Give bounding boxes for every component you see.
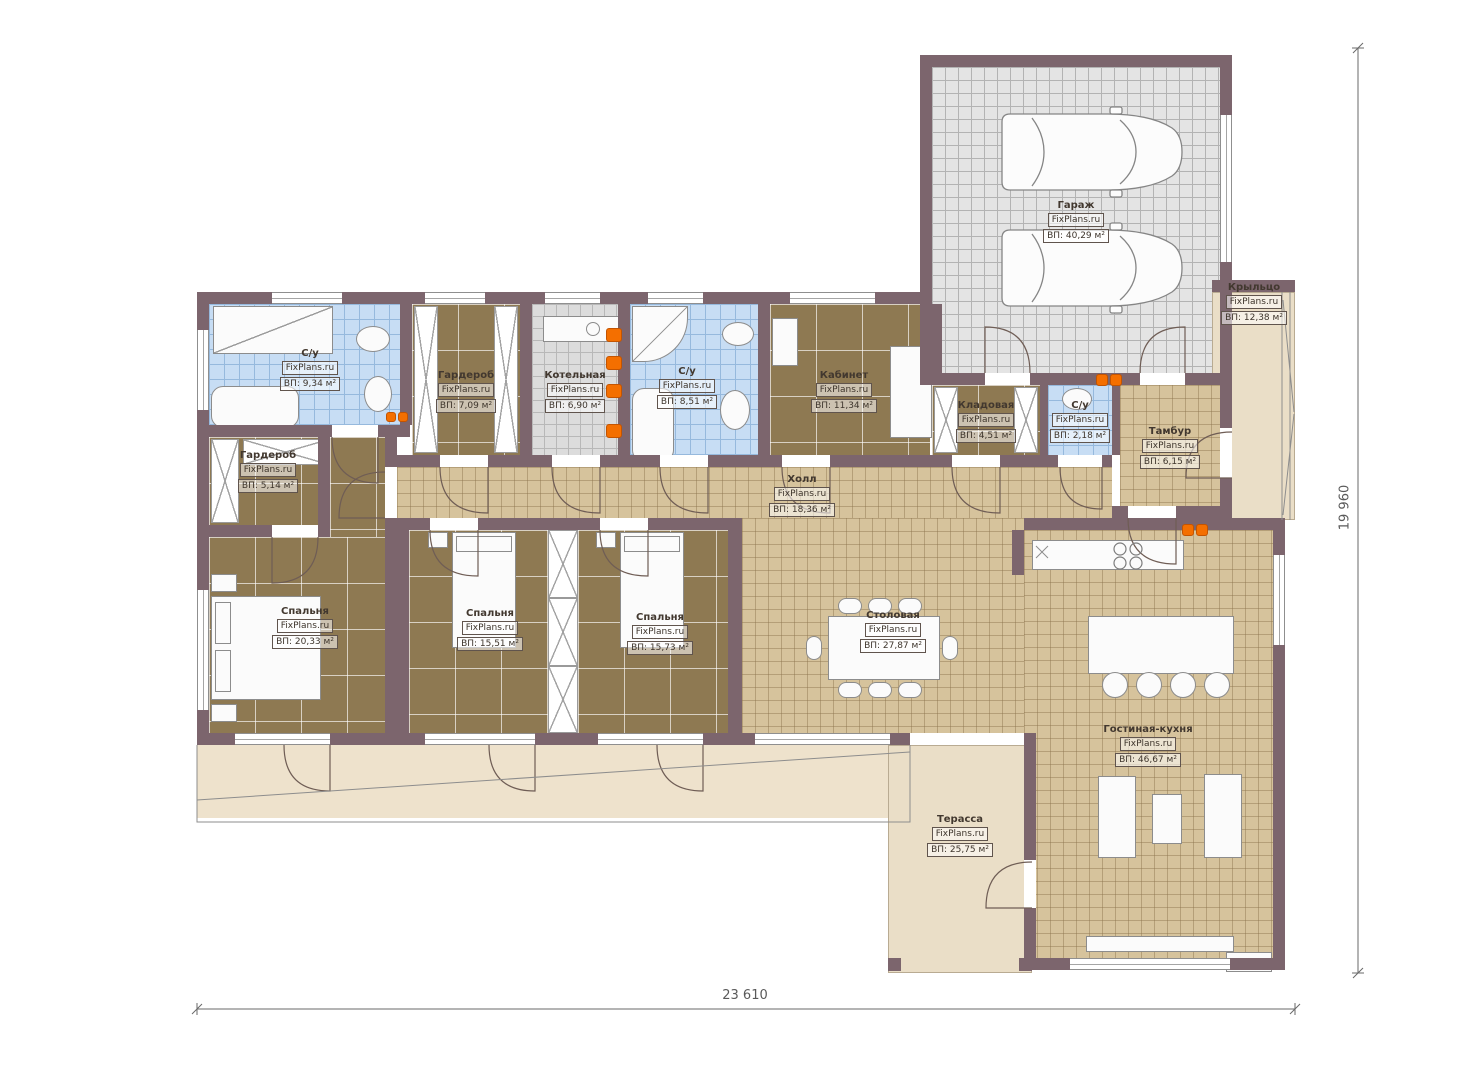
room-name: Холл xyxy=(787,474,816,485)
room-name: Тамбур xyxy=(1149,426,1191,437)
room-name: Столовая xyxy=(866,610,920,621)
door-opening xyxy=(385,467,397,518)
radiator xyxy=(1196,524,1208,536)
room-area: ВП: 46,67 м² xyxy=(1115,753,1181,767)
window-glass-door xyxy=(235,733,330,745)
chair xyxy=(868,682,892,698)
floor-plan-page: { "watermark": "FixPlans.ru", "dimension… xyxy=(0,0,1474,1080)
room-area: ВП: 27,87 м² xyxy=(860,639,926,653)
room-area: ВП: 2,18 м² xyxy=(1050,429,1110,443)
room-name: Гардероб xyxy=(240,450,296,461)
watermark: FixPlans.ru xyxy=(547,383,603,397)
floor-terrace xyxy=(888,745,1032,973)
room-label-bathroom-3: С/у FixPlans.ru ВП: 2,18 м² xyxy=(1044,400,1116,443)
room-area: ВП: 5,14 м² xyxy=(238,479,298,493)
nightstand xyxy=(211,704,237,722)
wall xyxy=(1220,518,1285,530)
wall xyxy=(197,425,410,437)
shower xyxy=(213,306,333,354)
wall xyxy=(1024,733,1036,958)
room-name: Спальня xyxy=(281,606,329,617)
chair xyxy=(942,636,958,660)
sofa xyxy=(1098,776,1136,858)
nightstand xyxy=(596,532,616,548)
toilet xyxy=(356,326,390,352)
wall xyxy=(728,530,742,733)
room-area: ВП: 18,36 м² xyxy=(769,503,835,517)
door-opening xyxy=(782,455,830,467)
radiator xyxy=(386,412,396,422)
watermark: FixPlans.ru xyxy=(282,361,338,375)
nightstand xyxy=(211,574,237,592)
watermark: FixPlans.ru xyxy=(1226,295,1282,309)
watermark: FixPlans.ru xyxy=(462,621,518,635)
room-name: Котельная xyxy=(544,370,605,381)
door-opening xyxy=(1128,506,1176,518)
window xyxy=(790,292,875,304)
room-label-bathroom-2: С/у FixPlans.ru ВП: 8,51 м² xyxy=(645,366,729,409)
window-glass-door xyxy=(755,733,890,745)
sink xyxy=(364,376,392,412)
radiator xyxy=(1182,524,1194,536)
watermark: FixPlans.ru xyxy=(1048,213,1104,227)
window-glass-door xyxy=(425,733,535,745)
room-area: ВП: 15,73 м² xyxy=(627,641,693,655)
room-label-dining: Столовая FixPlans.ru ВП: 27,87 м² xyxy=(848,610,938,653)
watermark: FixPlans.ru xyxy=(1120,737,1176,751)
coffee-table xyxy=(1152,794,1182,844)
door-opening xyxy=(660,455,708,467)
pillow xyxy=(624,536,680,552)
room-label-storage: Кладовая FixPlans.ru ВП: 4,51 м² xyxy=(942,400,1030,443)
pillow xyxy=(456,536,512,552)
window xyxy=(425,292,485,304)
door-opening xyxy=(272,525,318,537)
room-name: С/у xyxy=(678,366,696,377)
watermark: FixPlans.ru xyxy=(774,487,830,501)
room-label-bedroom-1: Спальня FixPlans.ru ВП: 20,33 м² xyxy=(262,606,348,649)
room-name: С/у xyxy=(1071,400,1089,411)
door-opening xyxy=(430,518,478,530)
watermark: FixPlans.ru xyxy=(659,379,715,393)
room-name: Кладовая xyxy=(958,400,1015,411)
terrace-post xyxy=(888,958,901,971)
wall xyxy=(930,304,942,385)
room-area: ВП: 12,38 м² xyxy=(1221,311,1287,325)
floor-walkway xyxy=(197,745,910,818)
room-label-living-kitchen: Гостиная-кухня FixPlans.ru ВП: 46,67 м² xyxy=(1092,724,1204,767)
bar-stool xyxy=(1204,672,1230,698)
door-opening xyxy=(1140,373,1185,385)
window xyxy=(197,590,209,710)
window xyxy=(272,292,342,304)
door-opening xyxy=(952,455,1000,467)
room-area: ВП: 40,29 м² xyxy=(1043,229,1109,243)
watermark: FixPlans.ru xyxy=(438,383,494,397)
room-area: ВП: 6,15 м² xyxy=(1140,455,1200,469)
room-name: Гардероб xyxy=(438,370,494,381)
room-name: Крыльцо xyxy=(1228,282,1280,293)
garage-gate xyxy=(1220,115,1232,262)
floor-bedroom-1-entry xyxy=(330,437,385,537)
door-opening xyxy=(600,518,648,530)
room-label-wardrobe-2: Гардероб FixPlans.ru ВП: 5,14 м² xyxy=(225,450,311,493)
chair xyxy=(838,682,862,698)
radiator xyxy=(606,356,622,370)
room-area: ВП: 6,90 м² xyxy=(545,399,605,413)
room-area: ВП: 8,51 м² xyxy=(657,395,717,409)
room-area: ВП: 20,33 м² xyxy=(272,635,338,649)
closet xyxy=(548,598,578,666)
kitchen-island xyxy=(1088,616,1234,674)
car xyxy=(998,104,1194,200)
desk xyxy=(772,318,798,366)
room-area: ВП: 9,34 м² xyxy=(280,377,340,391)
pillow xyxy=(215,602,231,644)
radiator xyxy=(398,412,408,422)
window-glass-door xyxy=(598,733,703,745)
watermark: FixPlans.ru xyxy=(932,827,988,841)
bar-stool xyxy=(1170,672,1196,698)
wall xyxy=(1220,55,1232,115)
room-label-garage: Гараж FixPlans.ru ВП: 40,29 м² xyxy=(1028,200,1124,243)
dimension-right: 19 960 xyxy=(1338,473,1353,543)
room-label-bedroom-2: Спальня FixPlans.ru ВП: 15,51 м² xyxy=(447,608,533,651)
room-label-bathroom-1: С/у FixPlans.ru ВП: 9,34 м² xyxy=(268,348,352,391)
door-opening xyxy=(332,425,378,437)
radiator xyxy=(1110,374,1122,386)
watermark: FixPlans.ru xyxy=(958,413,1014,427)
door-opening xyxy=(440,455,488,467)
window xyxy=(545,292,600,304)
radiator xyxy=(1096,374,1108,386)
wall xyxy=(1220,292,1232,518)
room-name: Гараж xyxy=(1058,200,1095,211)
door-opening xyxy=(1058,455,1102,467)
wall xyxy=(758,304,770,455)
watermark: FixPlans.ru xyxy=(1142,439,1198,453)
room-label-boiler-room: Котельная FixPlans.ru ВП: 6,90 м² xyxy=(531,370,619,413)
sofa xyxy=(1204,774,1242,858)
room-name: С/у xyxy=(301,348,319,359)
toilet xyxy=(722,322,754,346)
kitchen-counter xyxy=(1032,540,1184,570)
room-name: Гостиная-кухня xyxy=(1103,724,1192,735)
room-label-vestibule: Тамбур FixPlans.ru ВП: 6,15 м² xyxy=(1128,426,1212,469)
room-area: ВП: 25,75 м² xyxy=(927,843,993,857)
terrace-post xyxy=(1019,958,1032,971)
floor-plan: С/у FixPlans.ru ВП: 9,34 м² Гардероб Fix… xyxy=(0,0,1474,1080)
watermark: FixPlans.ru xyxy=(1052,413,1108,427)
door-opening xyxy=(1024,860,1036,908)
dimension-bottom: 23 610 xyxy=(700,988,790,1003)
room-area: ВП: 11,34 м² xyxy=(811,399,877,413)
pillow xyxy=(215,650,231,692)
window xyxy=(197,330,209,410)
room-label-office: Кабинет FixPlans.ru ВП: 11,34 м² xyxy=(800,370,888,413)
bar-stool xyxy=(1136,672,1162,698)
closet xyxy=(548,530,578,598)
floor-hall-corridor xyxy=(397,467,1112,518)
window xyxy=(648,292,703,304)
chair xyxy=(806,636,822,660)
radiator xyxy=(606,328,622,342)
bar-stool xyxy=(1102,672,1128,698)
door-opening xyxy=(552,455,600,467)
room-label-porch: Крыльцо FixPlans.ru ВП: 12,38 м² xyxy=(1210,282,1298,325)
nightstand xyxy=(428,532,448,548)
wall xyxy=(400,304,412,425)
wall xyxy=(1012,530,1024,575)
window xyxy=(1070,958,1230,970)
door-opening xyxy=(985,373,1030,385)
room-area: ВП: 15,51 м² xyxy=(457,637,523,651)
wall xyxy=(397,455,1112,467)
wall xyxy=(920,55,1232,67)
wall xyxy=(318,437,330,537)
watermark: FixPlans.ru xyxy=(865,623,921,637)
room-name: Спальня xyxy=(636,612,684,623)
room-name: Кабинет xyxy=(820,370,868,381)
wall xyxy=(397,530,409,733)
room-label-hall: Холл FixPlans.ru ВП: 18,36 м² xyxy=(758,474,846,517)
room-label-wardrobe-1: Гардероб FixPlans.ru ВП: 7,09 м² xyxy=(423,370,509,413)
closet xyxy=(548,666,578,733)
window xyxy=(1273,555,1285,645)
watermark: FixPlans.ru xyxy=(816,383,872,397)
tv-bench xyxy=(1086,936,1234,952)
room-area: ВП: 7,09 м² xyxy=(436,399,496,413)
room-label-terrace: Терасса FixPlans.ru ВП: 25,75 м² xyxy=(915,814,1005,857)
room-area: ВП: 4,51 м² xyxy=(956,429,1016,443)
entrance-door-opening xyxy=(1220,428,1232,478)
watermark: FixPlans.ru xyxy=(240,463,296,477)
watermark: FixPlans.ru xyxy=(632,625,688,639)
boiler-knob xyxy=(586,322,600,336)
room-label-bedroom-3: Спальня FixPlans.ru ВП: 15,73 м² xyxy=(617,612,703,655)
chair xyxy=(898,682,922,698)
room-name: Терасса xyxy=(937,814,983,825)
room-name: Спальня xyxy=(466,608,514,619)
radiator xyxy=(606,424,622,438)
watermark: FixPlans.ru xyxy=(277,619,333,633)
bathtub xyxy=(211,386,299,428)
